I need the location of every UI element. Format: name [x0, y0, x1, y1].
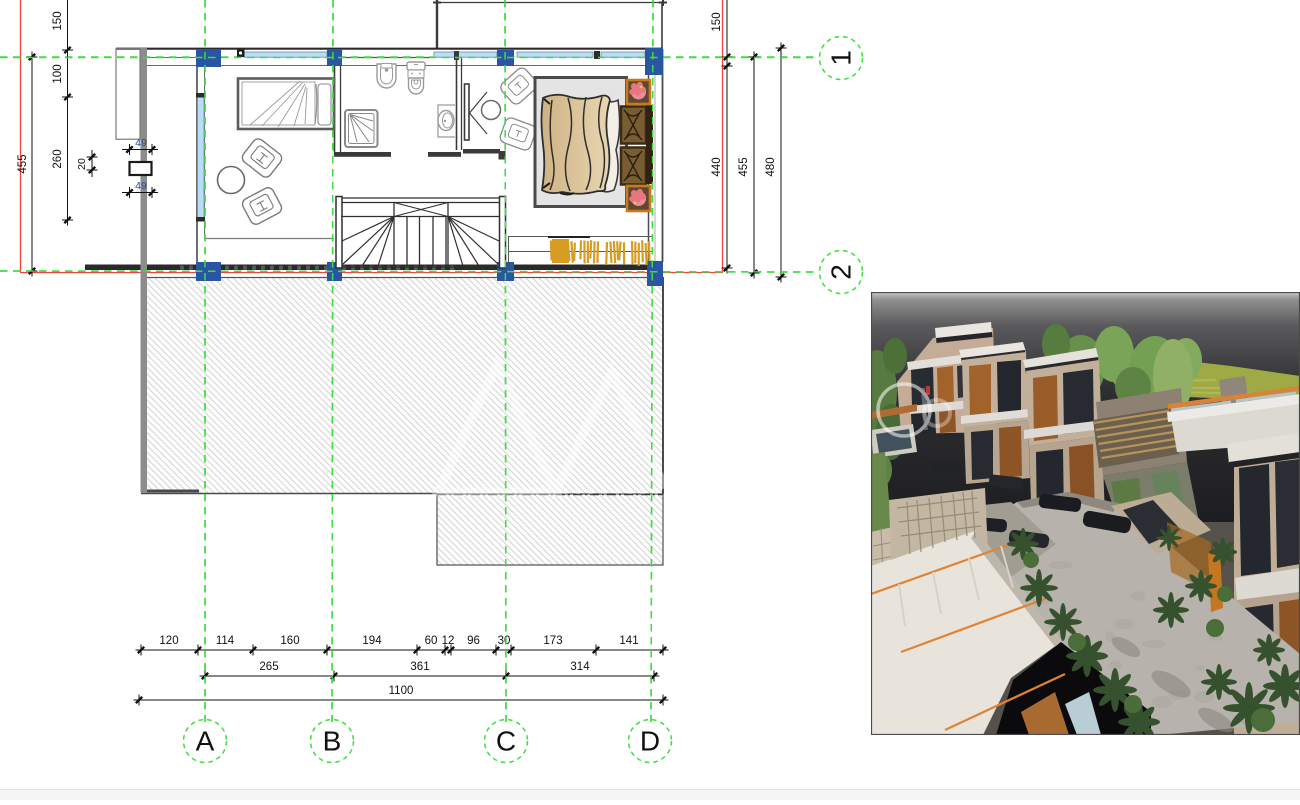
- svg-text:173: 173: [543, 635, 562, 647]
- svg-text:265: 265: [259, 661, 278, 673]
- svg-text:B: B: [323, 726, 342, 757]
- svg-text:440: 440: [711, 157, 723, 176]
- svg-text:D: D: [640, 726, 660, 757]
- svg-text:96: 96: [467, 635, 480, 647]
- svg-text:60: 60: [425, 635, 438, 647]
- svg-text:455: 455: [17, 154, 29, 173]
- svg-text:114: 114: [216, 635, 235, 647]
- svg-text:455: 455: [738, 157, 750, 176]
- svg-text:314: 314: [570, 661, 590, 673]
- svg-text:194: 194: [362, 635, 382, 647]
- svg-text:160: 160: [280, 635, 299, 647]
- svg-text:1100: 1100: [389, 685, 414, 697]
- svg-text:49: 49: [135, 137, 147, 149]
- svg-text:30: 30: [498, 635, 511, 647]
- svg-text:A: A: [196, 726, 215, 757]
- svg-text:20: 20: [76, 158, 88, 170]
- svg-text:49: 49: [135, 180, 147, 192]
- svg-text:120: 120: [159, 635, 178, 647]
- svg-text:2: 2: [826, 264, 857, 280]
- svg-text:150: 150: [52, 11, 64, 30]
- svg-text:260: 260: [52, 149, 64, 168]
- svg-text:141: 141: [619, 635, 638, 647]
- svg-text:480: 480: [765, 157, 777, 176]
- svg-text:12: 12: [442, 635, 455, 647]
- svg-text:1: 1: [826, 50, 857, 66]
- svg-text:C: C: [496, 726, 516, 757]
- svg-text:100: 100: [52, 64, 64, 83]
- svg-text:150: 150: [711, 12, 723, 31]
- svg-text:361: 361: [410, 661, 429, 673]
